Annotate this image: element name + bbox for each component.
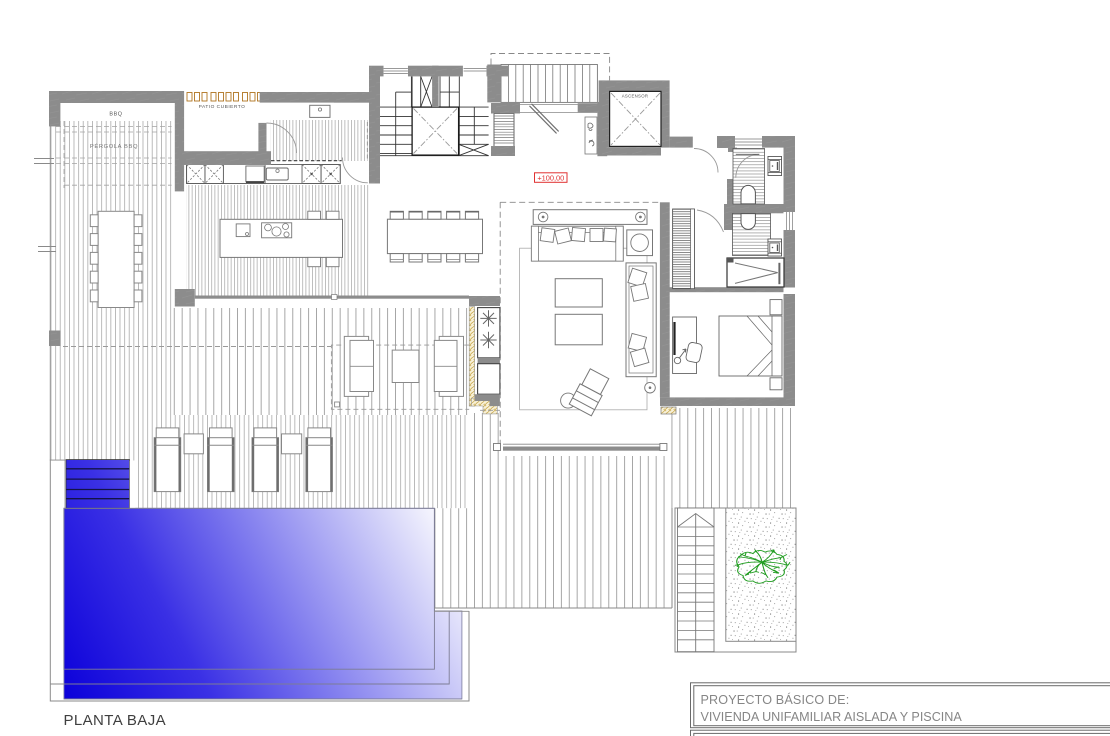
svg-text:ASCENSOR: ASCENSOR xyxy=(622,94,649,99)
svg-text:PÉRGOLA BBQ: PÉRGOLA BBQ xyxy=(90,143,138,150)
svg-text:BBQ: BBQ xyxy=(109,112,122,118)
svg-text:+100,00: +100,00 xyxy=(537,173,564,182)
svg-text:VIVIENDA UNIFAMILIAR AISLADA Y: VIVIENDA UNIFAMILIAR AISLADA Y PISCINA xyxy=(701,710,963,724)
svg-text:PROYECTO BÁSICO DE:: PROYECTO BÁSICO DE: xyxy=(701,692,850,707)
svg-text:PATIO CUBIERTO: PATIO CUBIERTO xyxy=(199,104,246,110)
svg-text:PLANTA BAJA: PLANTA BAJA xyxy=(64,712,167,729)
